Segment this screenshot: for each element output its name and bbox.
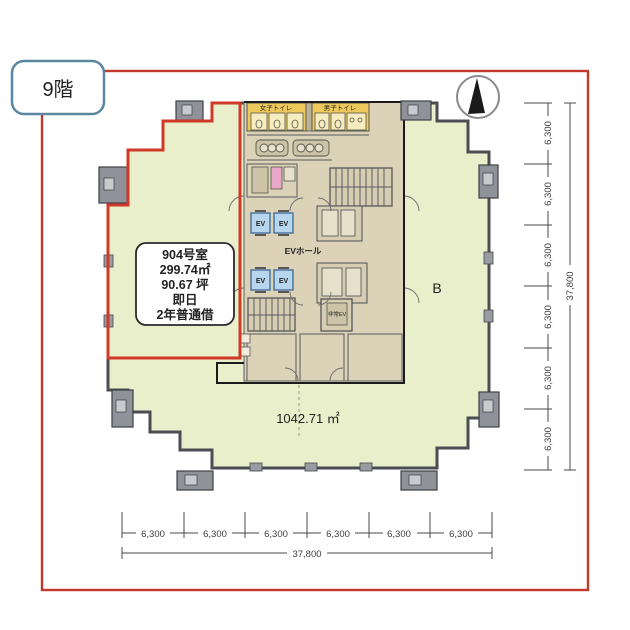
dim-segment: 6,300	[543, 243, 554, 267]
dim-segment: 6,300	[543, 305, 554, 329]
ev-label: EV	[279, 278, 289, 285]
room-info-box: 904号室 299.74㎡ 90.67 坪 即日 2年普通借	[136, 243, 234, 325]
room-number: 904号室	[162, 247, 208, 262]
room-area-sqm: 299.74㎡	[160, 262, 211, 277]
floorplan-page: 女子トイレ 男子トイレ EV EV EV EV EVホール	[0, 0, 630, 630]
dim-total-bottom: 37,800	[292, 549, 321, 560]
dim-segment: 6,300	[543, 427, 554, 451]
room-area-tsubo: 90.67 坪	[161, 278, 209, 292]
dim-segment: 6,300	[203, 529, 227, 540]
compass-icon	[457, 76, 499, 118]
ev-hall-label: EVホール	[285, 246, 322, 256]
ev-label: EV	[279, 221, 289, 228]
ev-label: EV	[256, 221, 266, 228]
emergency-elevator: 非常EV	[321, 299, 352, 331]
utility-counter	[252, 167, 268, 193]
emergency-ev-label: 非常EV	[328, 310, 347, 318]
ev-label: EV	[256, 278, 266, 285]
dim-segment: 6,300	[387, 529, 411, 540]
stairs-upper	[330, 168, 392, 206]
kitchenette-room	[271, 167, 282, 189]
utility-shaft	[284, 167, 295, 181]
mens-toilet-label: 男子トイレ	[324, 104, 357, 112]
womens-toilet-label: 女子トイレ	[260, 103, 293, 112]
dim-segment: 6,300	[326, 529, 350, 540]
stairs-lower	[248, 298, 295, 331]
toilet-shaft	[306, 103, 312, 131]
dim-segment: 6,300	[449, 529, 473, 540]
floor-badge: 9階	[12, 61, 104, 114]
dim-segment: 6,300	[543, 182, 554, 206]
total-area-label: 1042.71 ㎡	[276, 411, 340, 426]
floor-plan-svg: 女子トイレ 男子トイレ EV EV EV EV EVホール	[0, 0, 630, 630]
section-b-label: B	[432, 280, 441, 296]
floor-label: 9階	[42, 78, 73, 101]
dim-total-right: 37,800	[565, 271, 576, 300]
dim-segment: 6,300	[543, 366, 554, 390]
dim-segment: 6,300	[264, 529, 288, 540]
room-lease-type: 2年普通借	[157, 307, 214, 322]
dim-segment: 6,300	[543, 121, 554, 145]
dim-segment: 6,300	[141, 529, 165, 540]
room-availability: 即日	[172, 293, 197, 307]
